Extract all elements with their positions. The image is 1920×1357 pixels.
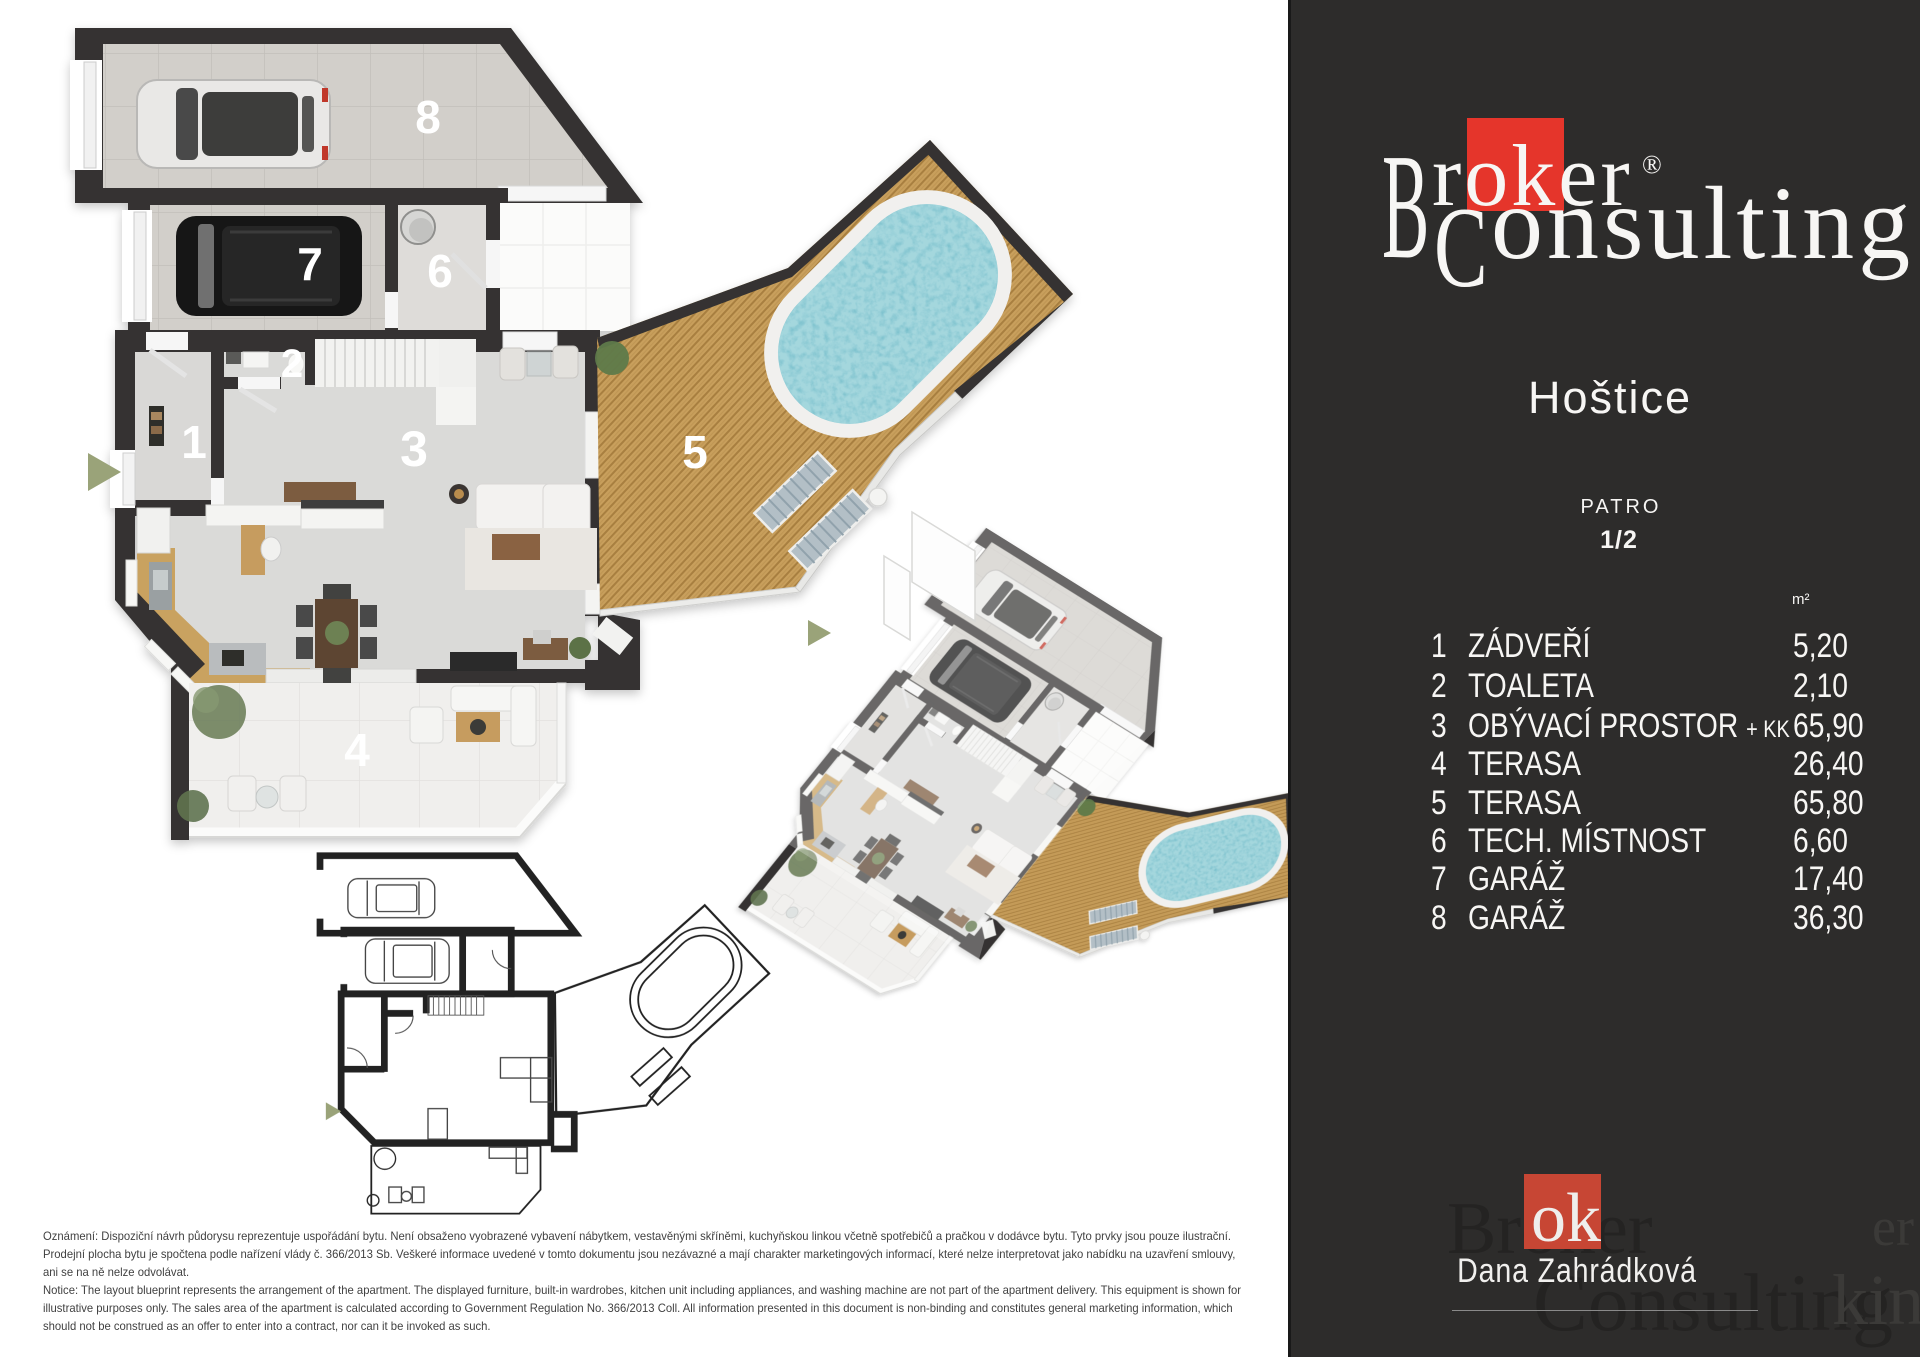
svg-text:6: 6 — [427, 245, 453, 297]
svg-text:4: 4 — [344, 724, 370, 776]
svg-text:5: 5 — [682, 426, 708, 478]
svg-text:1: 1 — [181, 416, 207, 468]
svg-text:7: 7 — [297, 238, 323, 290]
svg-text:3: 3 — [400, 421, 428, 477]
svg-text:8: 8 — [415, 91, 441, 143]
svg-text:2: 2 — [281, 342, 303, 386]
